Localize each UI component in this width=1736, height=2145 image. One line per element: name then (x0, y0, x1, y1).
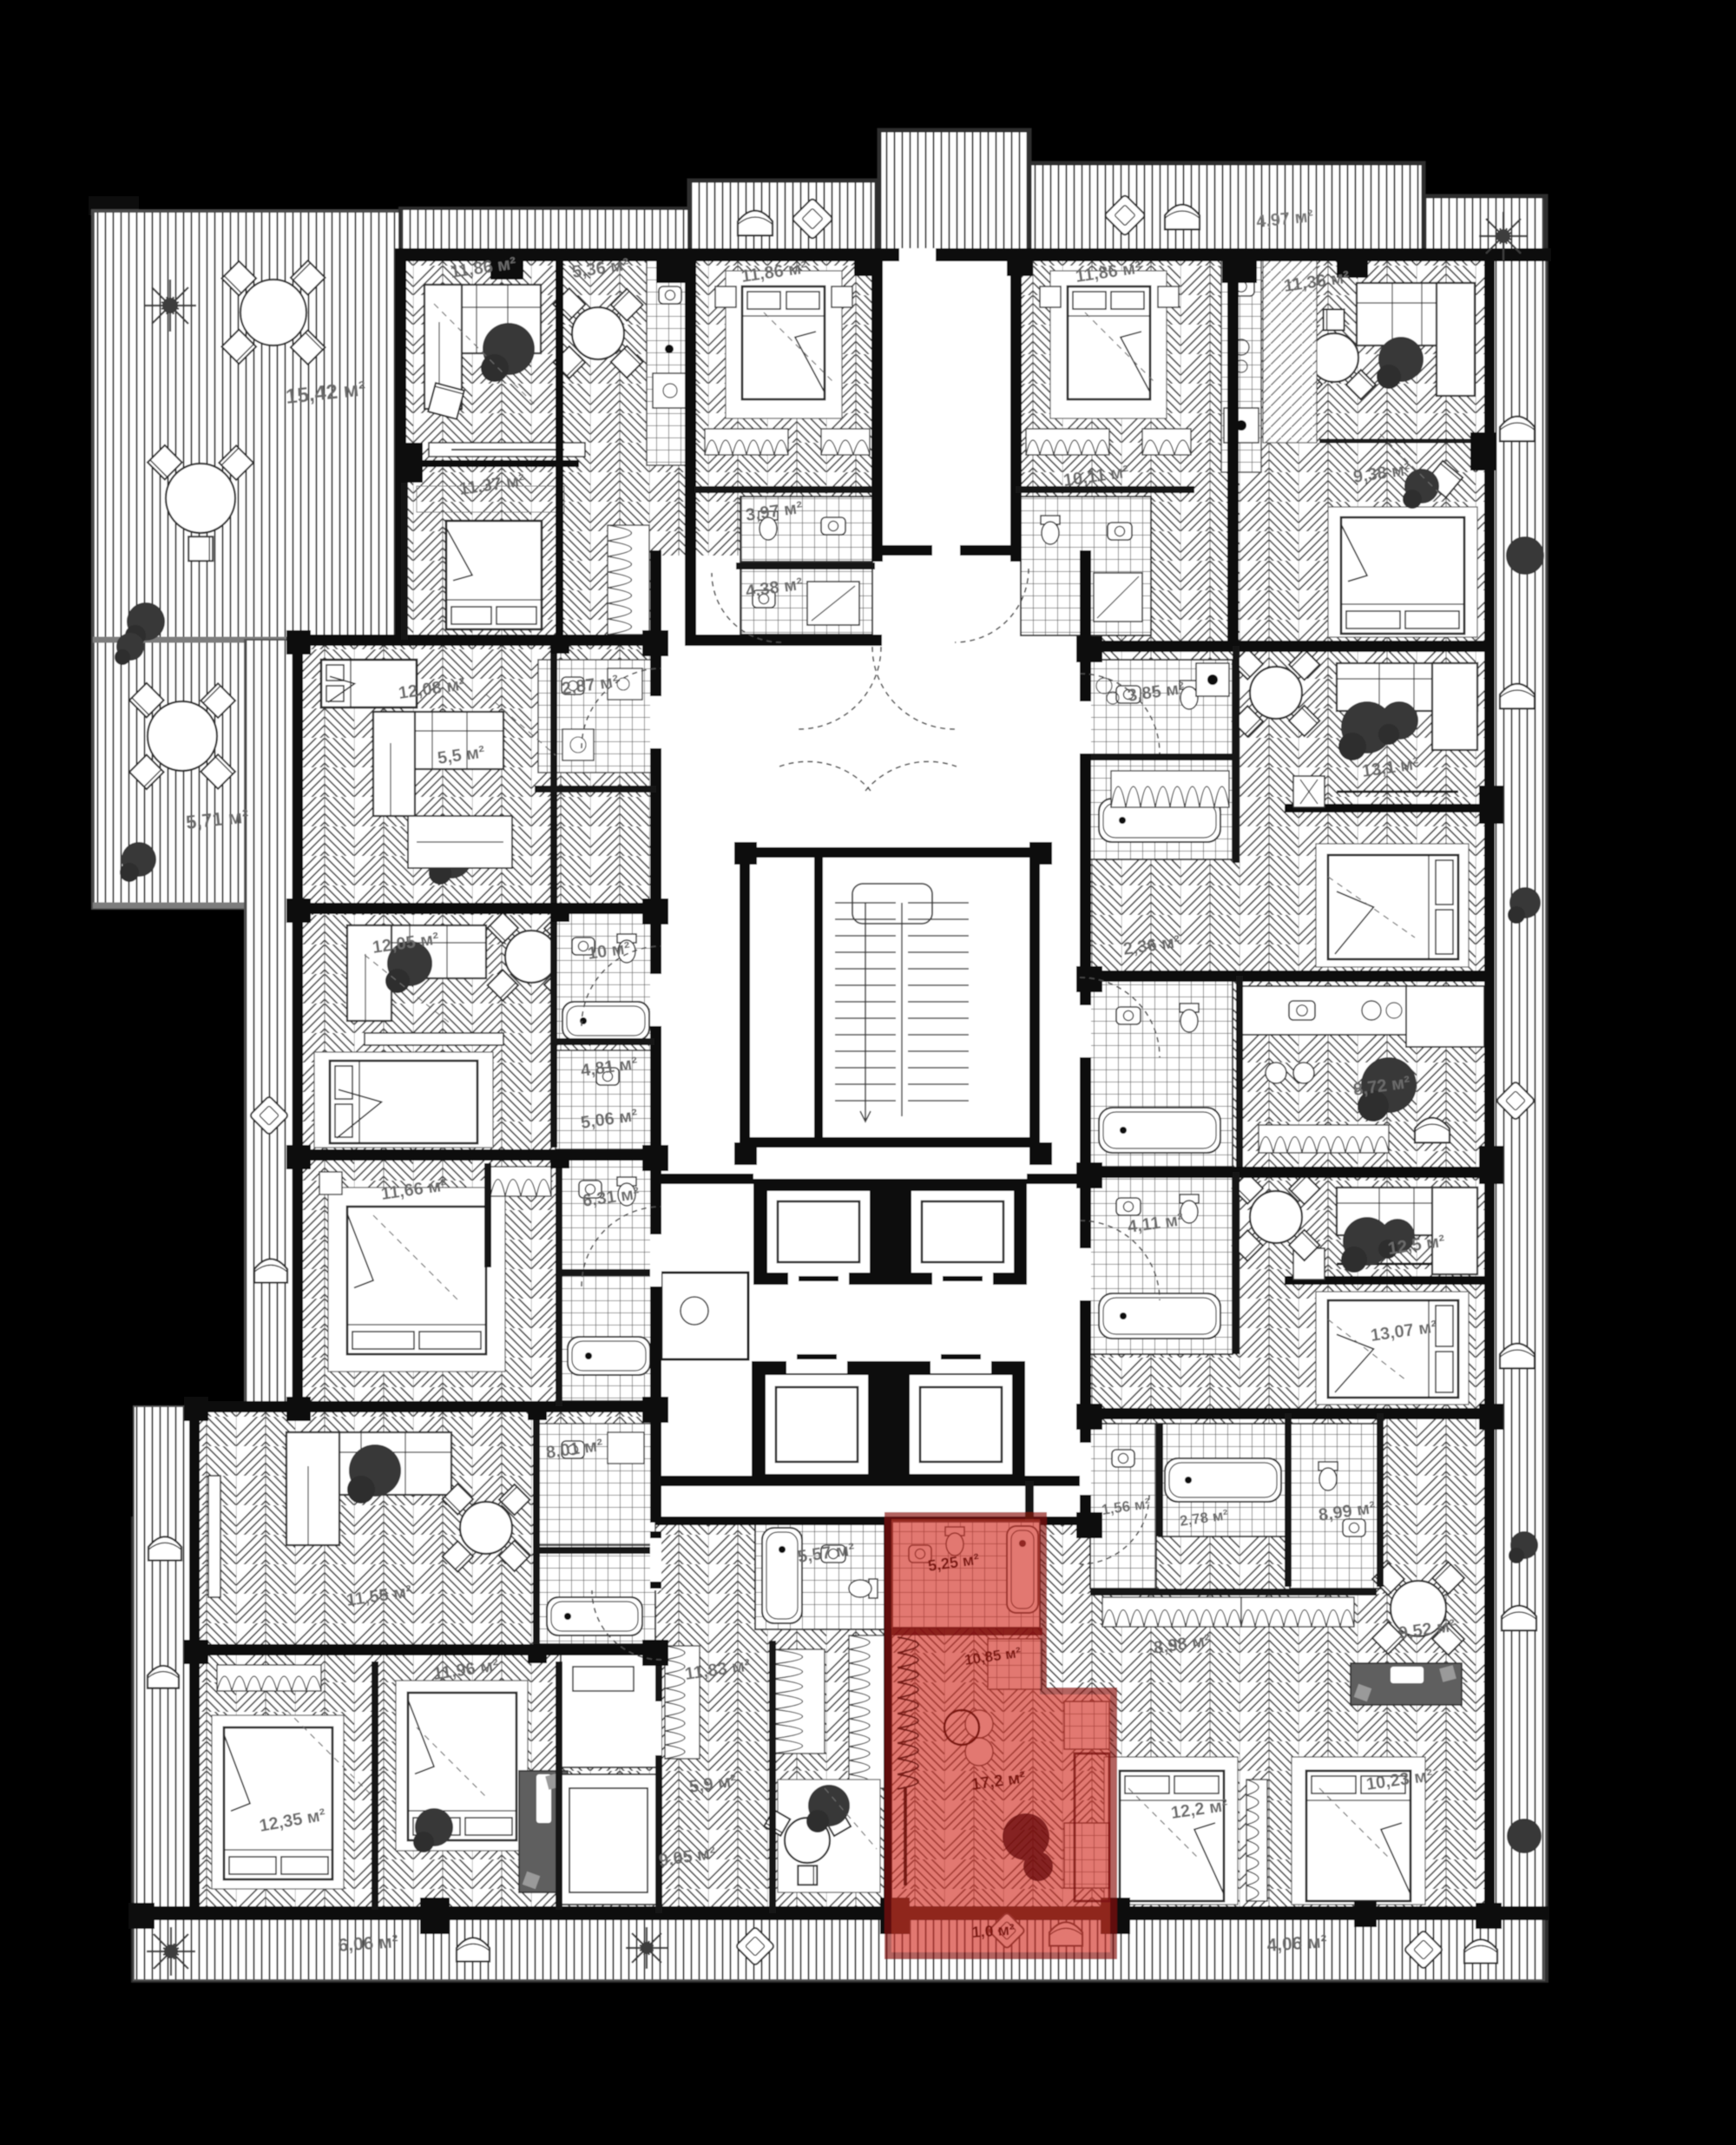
svg-text:4,06 м²: 4,06 м² (1266, 1931, 1328, 1956)
svg-text:1,0 м²: 1,0 м² (971, 1921, 1016, 1941)
svg-text:6,06 м²: 6,06 м² (338, 1931, 399, 1956)
